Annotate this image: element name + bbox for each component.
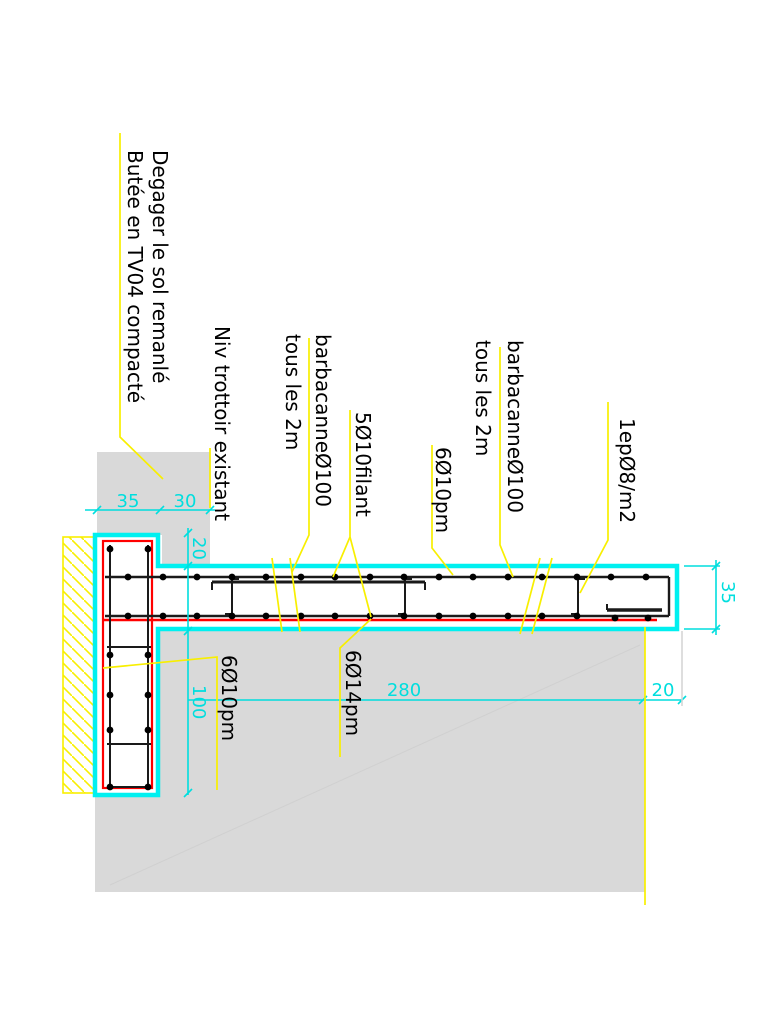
dim-280-length: 280: [387, 680, 421, 701]
label-610-top: 6Ø10pm: [431, 447, 455, 533]
dim-100-depth: 100: [188, 685, 209, 719]
dim-20-step: 20: [188, 537, 209, 560]
label-degager-line2: Butée en TV04 compacté: [123, 150, 147, 403]
dim-35-beam: 35: [717, 581, 738, 604]
soil-excavation-block: [95, 631, 645, 892]
dim-30-top: 30: [174, 491, 197, 512]
label-niv-trottoir: Niv trottoir existant: [210, 326, 234, 521]
label-barbacane1-line2: tous les 2m: [281, 334, 305, 450]
label-barbacane2-line1: barbacanneØ100: [503, 340, 527, 513]
label-614-bottom: 6Ø14pm: [341, 650, 365, 736]
label-degager-line1: Degager le sol remanlé: [148, 150, 172, 383]
dim-35-top: 35: [117, 491, 140, 512]
label-610-bottom: 6Ø10pm: [217, 655, 241, 741]
label-filant: 5Ø10filant: [351, 412, 375, 517]
label-etrier: 1epØ8/m2: [615, 418, 639, 523]
hatch-existing-wall: [63, 537, 97, 793]
drawing-canvas: 35 30 20 100 280 20 35 Degager le sol re…: [0, 0, 768, 1024]
dim-20-end: 20: [652, 680, 675, 701]
label-barbacane1-line1: barbacanneØ100: [311, 334, 335, 507]
label-barbacane2-line2: tous les 2m: [471, 340, 495, 456]
section-drawing: 35 30 20 100 280 20 35 Degager le sol re…: [0, 0, 768, 1024]
